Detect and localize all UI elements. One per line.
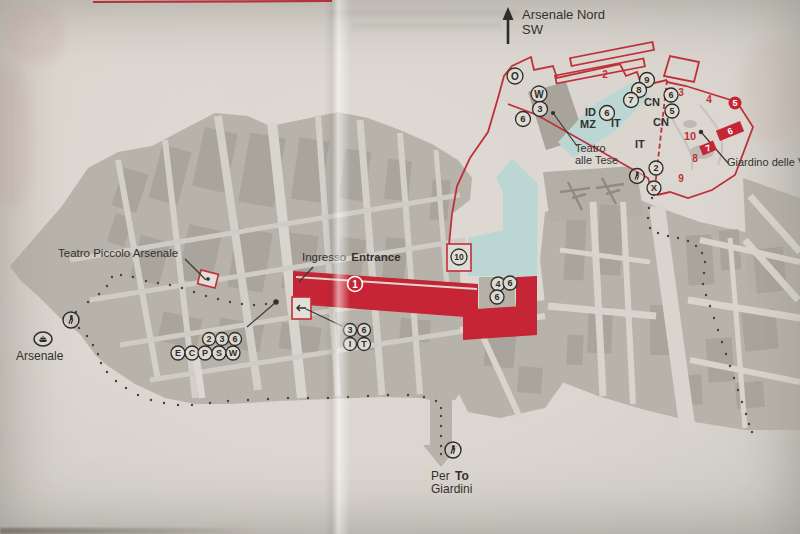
svg-text:8: 8 xyxy=(692,153,698,164)
garden-number-4: 4 xyxy=(706,94,712,105)
route-dot xyxy=(695,245,697,247)
it-label-1: IT xyxy=(611,117,621,129)
ingresso-it: Ingresso xyxy=(302,251,346,263)
svg-text:6: 6 xyxy=(520,113,525,124)
svg-text:2: 2 xyxy=(206,334,211,344)
route-dot xyxy=(267,398,269,400)
marker-circle-3: 3 xyxy=(344,324,357,337)
svg-text:E: E xyxy=(175,348,181,358)
garden-number-9: 9 xyxy=(678,173,684,184)
route-dot xyxy=(97,353,99,355)
marker-circle-6: 6 xyxy=(664,88,678,102)
svg-text:10: 10 xyxy=(684,130,696,142)
route-dot xyxy=(327,397,329,399)
idmz-label: ID MZ xyxy=(572,106,596,131)
route-dot xyxy=(137,394,139,396)
route-dot xyxy=(150,399,152,401)
route-dot xyxy=(181,287,183,289)
route-dot xyxy=(741,401,743,403)
route-dot xyxy=(440,445,442,447)
marker-circle-6: 6 xyxy=(516,112,531,127)
marker-circle-7: 7 xyxy=(624,93,639,108)
entrance-arrow-box xyxy=(292,297,311,319)
route-dot xyxy=(98,293,100,295)
route-dot xyxy=(125,387,127,389)
route-dot xyxy=(387,394,389,396)
route-dot xyxy=(745,413,747,415)
route-dot xyxy=(748,423,750,425)
route-dot xyxy=(733,377,735,379)
pedestrian-icon xyxy=(445,442,461,458)
route-dot xyxy=(247,399,249,401)
route-dot xyxy=(423,396,425,398)
route-dot xyxy=(163,402,165,404)
route-dot xyxy=(115,380,117,382)
route-dot xyxy=(647,217,649,219)
route-dot xyxy=(111,276,113,278)
svg-text:S: S xyxy=(216,348,222,358)
svg-text:C: C xyxy=(189,348,196,358)
route-dot xyxy=(440,407,442,409)
route-dot xyxy=(106,371,108,373)
marker-circle-3: 3 xyxy=(216,333,229,346)
svg-text:6: 6 xyxy=(668,90,673,100)
route-dot xyxy=(705,294,707,296)
svg-text:6: 6 xyxy=(494,292,499,302)
svg-text:I: I xyxy=(349,339,352,349)
route-dot xyxy=(704,261,706,263)
route-dot xyxy=(193,291,195,293)
svg-text:6: 6 xyxy=(232,334,237,344)
route-dot xyxy=(227,400,229,402)
route-dot xyxy=(253,304,255,306)
garden-number-5: 5 xyxy=(729,97,742,110)
marker-circle-O: O xyxy=(507,68,523,84)
route-dot xyxy=(717,329,719,331)
marker-circle-S: S xyxy=(212,346,226,360)
svg-text:X: X xyxy=(651,183,657,193)
route-dot xyxy=(701,252,703,254)
ingresso-label: Ingresso Entrance xyxy=(302,251,401,264)
cn-label-2: CN xyxy=(653,116,669,128)
route-dot xyxy=(737,389,739,391)
svg-text:3: 3 xyxy=(678,87,684,98)
compass-label: Arsenale Nord SW xyxy=(522,8,605,37)
svg-text:6: 6 xyxy=(604,107,609,118)
route-dot xyxy=(287,397,289,399)
svg-text:3: 3 xyxy=(537,103,542,114)
route-dot xyxy=(709,305,711,307)
building-block xyxy=(566,335,583,366)
route-dot xyxy=(169,284,171,286)
route-dot xyxy=(649,227,651,229)
garden-number-10: 10 xyxy=(684,130,696,142)
svg-text:4: 4 xyxy=(706,94,712,105)
marker-circle-3: 3 xyxy=(533,102,548,117)
svg-text:W: W xyxy=(229,348,238,358)
teatro-tese-label: Teatro alle Tese xyxy=(575,142,618,167)
svg-text:4: 4 xyxy=(495,279,500,289)
north-arrow-icon xyxy=(503,7,514,44)
building-block xyxy=(705,337,734,383)
route-dot xyxy=(648,207,650,209)
marker-circle-P: P xyxy=(198,346,212,360)
route-dot xyxy=(407,394,409,396)
pier-outline-small xyxy=(664,56,699,82)
svg-text:10: 10 xyxy=(454,252,464,262)
route-dot xyxy=(241,303,243,305)
canal-central xyxy=(468,158,538,276)
route-dot xyxy=(703,272,705,274)
pedestrian-icon xyxy=(630,169,645,184)
svg-text:5: 5 xyxy=(732,98,737,108)
map-photo: OW366987652X10466236ECPSW36IT12341089567… xyxy=(0,0,800,534)
svg-text:5: 5 xyxy=(669,106,674,116)
route-dot xyxy=(86,335,88,337)
route-dot xyxy=(702,283,704,285)
svg-text:1: 1 xyxy=(352,279,358,290)
route-dot xyxy=(435,400,437,402)
route-dot xyxy=(440,425,442,427)
building-block xyxy=(596,204,624,275)
route-dot xyxy=(78,327,80,329)
route-dot xyxy=(721,341,723,343)
marker-circle-I: I xyxy=(344,338,357,351)
svg-text:8: 8 xyxy=(636,84,641,95)
route-dot xyxy=(87,301,89,303)
entrance-number-marker: 1 xyxy=(348,277,363,292)
building-block xyxy=(517,366,543,394)
route-dot xyxy=(106,285,108,287)
svg-text:9: 9 xyxy=(644,74,649,85)
route-dot xyxy=(145,280,147,282)
route-dot xyxy=(667,235,669,237)
building-block xyxy=(384,159,412,201)
route-dot xyxy=(440,415,442,417)
svg-text:6: 6 xyxy=(361,325,366,335)
marker-circle-W: W xyxy=(531,86,547,102)
marker-circle-E: E xyxy=(171,346,185,360)
route-dot xyxy=(440,435,442,437)
svg-text:W: W xyxy=(534,89,544,100)
garden-number-3: 3 xyxy=(678,87,684,98)
compass-line2: SW xyxy=(522,23,605,38)
svg-text:3: 3 xyxy=(347,325,352,335)
marker-circle-6: 6 xyxy=(503,276,517,290)
route-dot xyxy=(729,365,731,367)
svg-text:2: 2 xyxy=(602,69,608,80)
route-dot xyxy=(657,232,659,234)
svg-text:6: 6 xyxy=(507,278,512,288)
cn-label-1: CN xyxy=(644,96,660,108)
route-dot xyxy=(307,397,309,399)
teatro-piccolo-label: Teatro Piccolo Arsenale xyxy=(58,247,178,260)
map-canvas: OW366987652X10466236ECPSW36IT12341089567 xyxy=(0,0,800,534)
marker-circle-2: 2 xyxy=(203,333,216,346)
route-dot xyxy=(677,237,679,239)
route-dot xyxy=(157,282,159,284)
route-dot xyxy=(217,298,219,300)
marker-circle-W: W xyxy=(226,346,240,360)
svg-text:3: 3 xyxy=(219,334,224,344)
route-dot xyxy=(120,274,122,276)
route-dot xyxy=(100,362,102,364)
garden-number-8: 8 xyxy=(692,153,698,164)
route-dot xyxy=(229,301,231,303)
route-dot xyxy=(92,344,94,346)
vaporetto-stop-icon xyxy=(34,332,52,346)
route-dot xyxy=(177,404,179,406)
route-dot xyxy=(440,453,442,455)
route-dot xyxy=(265,303,267,305)
marker-circle-6: 6 xyxy=(358,324,371,337)
page-top-rule xyxy=(93,1,332,2)
marker-circle-6: 6 xyxy=(229,333,242,346)
u-right-arm xyxy=(516,276,537,335)
svg-text:2: 2 xyxy=(653,163,658,173)
marker-circle-2: 2 xyxy=(649,161,663,175)
svg-text:9: 9 xyxy=(678,173,684,184)
per-giardini-label: Per To Giardini xyxy=(431,470,472,497)
garden-number-2: 2 xyxy=(602,69,608,80)
marker-circle-6: 6 xyxy=(490,290,504,304)
svg-text:P: P xyxy=(202,348,208,358)
giardino-label: Giardino delle Ve xyxy=(727,156,800,168)
route-dot xyxy=(132,276,134,278)
ingresso-en: Entrance xyxy=(351,251,400,263)
arsenale-stop-label: Arsenale xyxy=(16,350,63,363)
compass-line1: Arsenale Nord xyxy=(522,8,605,23)
pedestrian-icon xyxy=(63,312,79,328)
marker-circle-10: 10 xyxy=(451,249,467,265)
svg-text:T: T xyxy=(361,339,367,349)
route-dot xyxy=(713,317,715,319)
route-dot xyxy=(347,396,349,398)
marker-circle-T: T xyxy=(358,338,371,351)
route-dot xyxy=(191,404,193,406)
route-dot xyxy=(367,395,369,397)
marker-circle-X: X xyxy=(647,181,661,195)
route-dot xyxy=(725,353,727,355)
marker-circle-C: C xyxy=(185,346,199,360)
route-dot xyxy=(751,431,753,433)
page-bottom-shadow xyxy=(0,528,260,534)
route-dot xyxy=(205,295,207,297)
route-dot xyxy=(687,240,689,242)
svg-text:7: 7 xyxy=(628,94,633,105)
svg-text:O: O xyxy=(511,71,519,82)
route-dot xyxy=(209,402,211,404)
it-label-2: IT xyxy=(635,138,645,150)
garden-blob xyxy=(683,120,697,128)
route-dot xyxy=(651,197,653,199)
